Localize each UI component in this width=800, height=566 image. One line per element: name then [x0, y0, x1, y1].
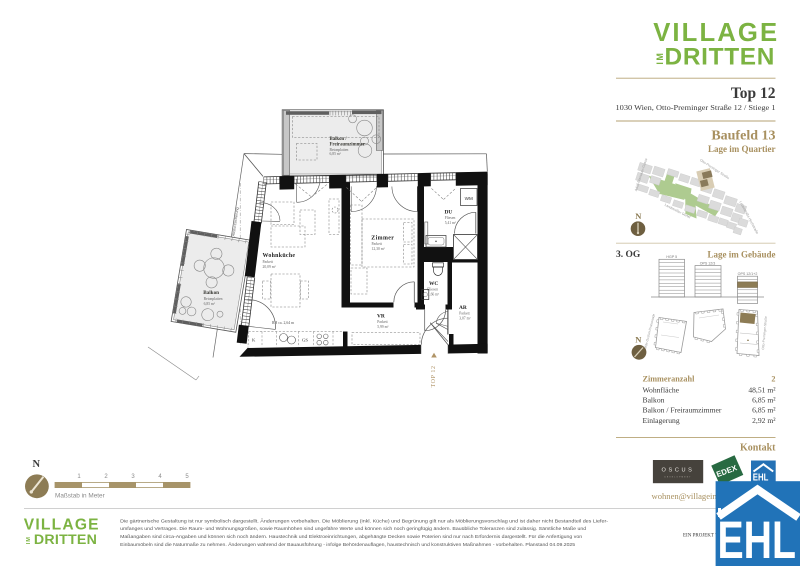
svg-text:Die gärtnerische Gestaltung is: Die gärtnerische Gestaltung ist nur symb… [120, 517, 608, 524]
svg-text:HGP 5: HGP 5 [666, 255, 677, 259]
svg-text:Parkett: Parkett [377, 320, 387, 324]
svg-text:Balkon: Balkon [643, 395, 665, 404]
svg-text:DU: DU [445, 209, 453, 215]
svg-text:Maßstab in Meter: Maßstab in Meter [55, 492, 106, 499]
svg-text:2,92 m²: 2,92 m² [752, 416, 776, 425]
svg-text:Zimmeranzahl: Zimmeranzahl [643, 375, 696, 384]
svg-text:Parkett: Parkett [459, 311, 469, 315]
svg-text:Top 12: Top 12 [731, 85, 776, 102]
svg-text:3. OG: 3. OG [616, 250, 641, 260]
svg-text:AR: AR [459, 305, 467, 311]
svg-text:Lage im Gebäude: Lage im Gebäude [707, 249, 775, 259]
svg-text:Parkett: Parkett [263, 260, 273, 264]
svg-text:Maßangaben sind circa-Angaben: Maßangaben sind circa-Angaben und können… [120, 534, 582, 540]
svg-text:Baufeld 13: Baufeld 13 [711, 129, 775, 144]
svg-text:6,85 m²: 6,85 m² [752, 406, 776, 415]
svg-text:WC: WC [429, 281, 438, 287]
svg-text:Einbaumöbeln sind die Naturmaß: Einbaumöbeln sind die Naturmaße zu nehme… [120, 541, 575, 548]
svg-text:Wohnküche: Wohnküche [263, 253, 296, 259]
svg-text:DEVELOPMENT: DEVELOPMENT [664, 476, 691, 478]
svg-text:N: N [33, 459, 41, 470]
svg-text:6,85 m²: 6,85 m² [752, 395, 776, 404]
svg-text:WM: WM [465, 196, 473, 201]
svg-text:VILLAGE: VILLAGE [24, 516, 100, 533]
svg-text:Einlagerung: Einlagerung [643, 416, 680, 425]
svg-text:TOP 12: TOP 12 [431, 365, 437, 387]
svg-text:1030 Wien, Otto-Preminger Stra: 1030 Wien, Otto-Preminger Straße 12 / St… [616, 104, 776, 112]
svg-text:DRITTEN: DRITTEN [665, 43, 776, 70]
svg-text:OSCUS: OSCUS [662, 468, 695, 474]
svg-text:Zimmer: Zimmer [371, 235, 394, 241]
svg-text:VR: VR [377, 313, 385, 319]
svg-text:OPS 12/3: OPS 12/3 [700, 261, 716, 265]
svg-text:OPS 12/1+2: OPS 12/1+2 [738, 272, 758, 276]
svg-text:Balkon /: Balkon / [330, 137, 348, 142]
svg-text:EHL: EHL [753, 471, 769, 482]
svg-text:EHL: EHL [718, 510, 796, 566]
svg-text:2: 2 [771, 375, 775, 384]
svg-text:GS: GS [302, 338, 308, 343]
svg-text:Lage im Quartier: Lage im Quartier [708, 144, 775, 154]
svg-text:N: N [635, 211, 642, 221]
svg-text:48,51 m²: 48,51 m² [748, 386, 776, 395]
svg-text:Parkett: Parkett [372, 242, 382, 246]
svg-text:Kontakt: Kontakt [740, 442, 776, 453]
svg-text:N: N [635, 335, 642, 345]
svg-text:▲: ▲ [746, 338, 749, 342]
svg-text:Balkon / Freiraumzimmer: Balkon / Freiraumzimmer [643, 406, 722, 415]
svg-text:Betonplatten: Betonplatten [204, 297, 223, 301]
svg-text:IM: IM [26, 536, 32, 544]
svg-text:umfanges und Vertrages. Die Ra: umfanges und Vertrages. Die Raum- und Wo… [120, 526, 586, 532]
svg-text:Balkon: Balkon [203, 290, 219, 296]
svg-text:Wohnfläche: Wohnfläche [643, 386, 680, 395]
svg-text:Fliesen: Fliesen [445, 216, 456, 220]
svg-text:Betonplatten: Betonplatten [330, 148, 349, 152]
svg-text:DRITTEN: DRITTEN [34, 532, 97, 548]
